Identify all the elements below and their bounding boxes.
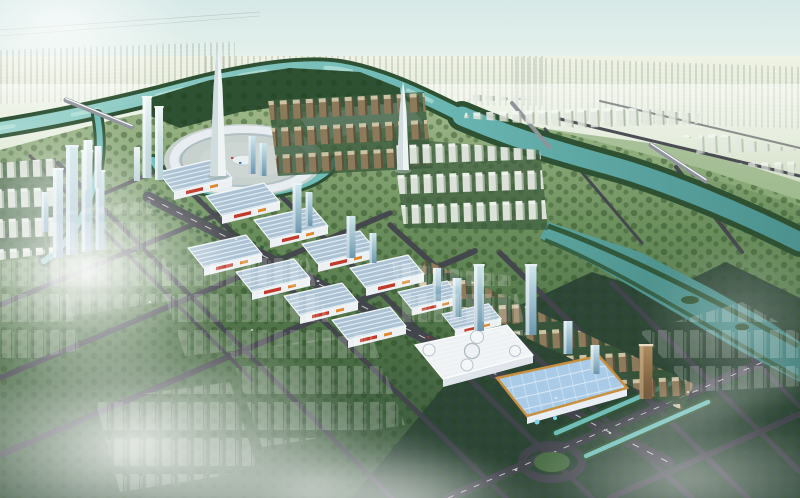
glass-tower: [306, 192, 313, 226]
glass-tower: [260, 143, 267, 176]
glass-tower: [347, 216, 356, 258]
glass-tower: [249, 136, 256, 174]
glass-tower: [292, 183, 302, 233]
glass-tower: [525, 264, 537, 335]
glass-tower: [370, 233, 377, 263]
aerial-city-rendering: Aerial rendering of a riverside new-town…: [0, 0, 800, 498]
glass-tower: [564, 321, 573, 354]
glass-tower: [591, 345, 600, 374]
